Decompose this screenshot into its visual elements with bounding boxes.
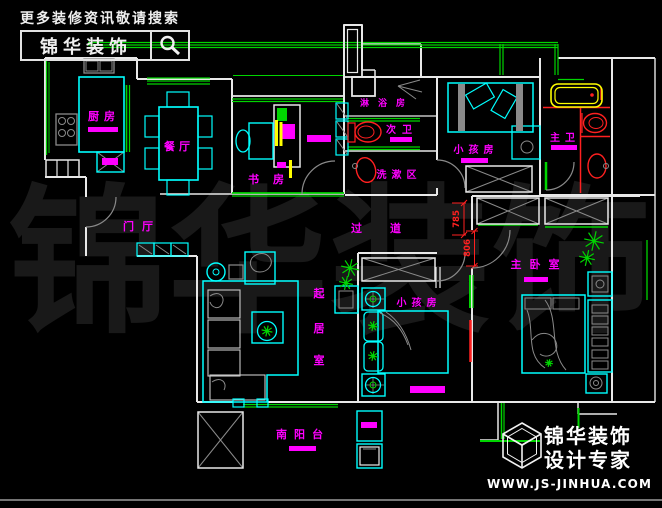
- detail-line: [337, 122, 347, 136]
- master-bath-label: 主卫: [550, 131, 580, 144]
- dining-label: 餐厅: [163, 139, 194, 153]
- furniture-rect: [145, 116, 159, 137]
- filled-mark: [277, 108, 287, 121]
- filled-mark: [516, 84, 523, 131]
- detail-line: [398, 80, 420, 86]
- footer-brand-line2: 设计专家: [544, 444, 632, 473]
- company-cube-logo-icon: [498, 419, 546, 473]
- detail-line: [337, 140, 347, 154]
- foyer-label: 门厅: [123, 219, 161, 233]
- furniture-rect: [348, 123, 355, 142]
- filled-mark: [307, 135, 331, 142]
- brand-search-label: 锦华装饰: [40, 33, 132, 59]
- living-room-label: 起: [313, 286, 326, 300]
- fixture-ellipse: [521, 141, 533, 153]
- floorplan-screenshot: 锦华装饰厨房餐厅书房淋浴房次卫洗漱区小孩房主卫过道主卧室起居室小孩房南阳台门厅7…: [0, 0, 662, 508]
- furniture-rect: [491, 90, 517, 119]
- plan-path: [212, 380, 225, 390]
- search-icon: [158, 34, 182, 58]
- fixture-ellipse: [358, 126, 374, 138]
- second-bath-label: 次卫: [386, 123, 418, 136]
- living-room-label: 室: [314, 353, 325, 367]
- plant-icon: [349, 267, 352, 270]
- dimension-806: 806: [463, 239, 473, 257]
- dimension-785: 785: [452, 210, 462, 228]
- filled-mark: [361, 422, 377, 428]
- fixture-ellipse: [590, 377, 602, 389]
- filled-mark: [275, 120, 278, 146]
- filled-mark: [277, 162, 286, 168]
- furniture-rect: [198, 148, 212, 169]
- living-room-label: 居: [314, 322, 325, 335]
- filled-mark: [280, 122, 283, 146]
- furniture-rect: [145, 148, 159, 169]
- furniture-rect: [198, 116, 212, 137]
- furniture-rect: [466, 83, 495, 109]
- fixture-ellipse: [59, 130, 66, 137]
- furniture-rect: [348, 30, 358, 73]
- filled-mark: [390, 137, 412, 142]
- filled-mark: [410, 386, 445, 393]
- furniture-rect: [86, 61, 98, 71]
- furniture-rect: [167, 92, 189, 107]
- filled-mark: [102, 158, 118, 165]
- plant-icon: [372, 325, 375, 328]
- brand-search-box: 锦华装饰: [20, 30, 152, 61]
- furniture-rect: [210, 375, 265, 400]
- plant-icon: [586, 257, 589, 260]
- furniture-rect: [592, 361, 608, 369]
- filled-mark: [289, 446, 316, 451]
- filled-mark: [461, 158, 488, 163]
- furniture-rect: [249, 123, 273, 159]
- footer-url: WWW.JS-JINHUA.COM: [487, 477, 652, 491]
- plant-icon: [372, 355, 375, 358]
- filled-mark: [282, 124, 295, 139]
- watermark-char: 装: [330, 168, 490, 356]
- furniture-rect: [100, 61, 112, 71]
- plant-icon: [345, 282, 348, 285]
- south-balcony-label: 南阳台: [276, 427, 330, 441]
- plant-icon: [548, 362, 551, 365]
- furniture-rect: [344, 25, 362, 77]
- fixture-ellipse: [68, 118, 75, 125]
- kitchen-label: 厨房: [88, 109, 120, 123]
- kids-room2-label: 小孩房: [396, 296, 442, 309]
- detail-line: [337, 104, 347, 118]
- furniture-rect: [360, 447, 379, 465]
- filled-mark: [458, 84, 465, 131]
- corridor-label: 过道: [351, 221, 429, 235]
- fixture-ellipse: [59, 118, 66, 125]
- plant-icon: [593, 240, 596, 243]
- fixture-ellipse: [594, 381, 599, 386]
- kids-room-label: 小孩房: [453, 143, 499, 156]
- plant-icon: [266, 330, 269, 333]
- fixture-ellipse: [355, 122, 381, 142]
- filled-mark: [524, 277, 548, 282]
- filled-mark: [88, 127, 118, 132]
- fixture-ellipse: [590, 93, 594, 97]
- wash-area-label: 洗漱区: [377, 168, 422, 181]
- furniture-rect: [352, 77, 375, 96]
- master-bedroom-label: 主卧室: [511, 257, 568, 271]
- filled-mark: [551, 145, 577, 150]
- fixture-ellipse: [589, 118, 603, 129]
- watermark-char: 锦: [8, 168, 168, 356]
- shower-room-label: 淋浴房: [360, 97, 414, 109]
- search-icon-box: [150, 30, 190, 61]
- study-label: 书房: [248, 172, 298, 186]
- fixture-ellipse: [68, 130, 75, 137]
- promo-text: 更多装修资讯敬请搜索: [20, 8, 180, 28]
- fixture-ellipse: [236, 130, 250, 152]
- furniture-rect: [357, 444, 382, 468]
